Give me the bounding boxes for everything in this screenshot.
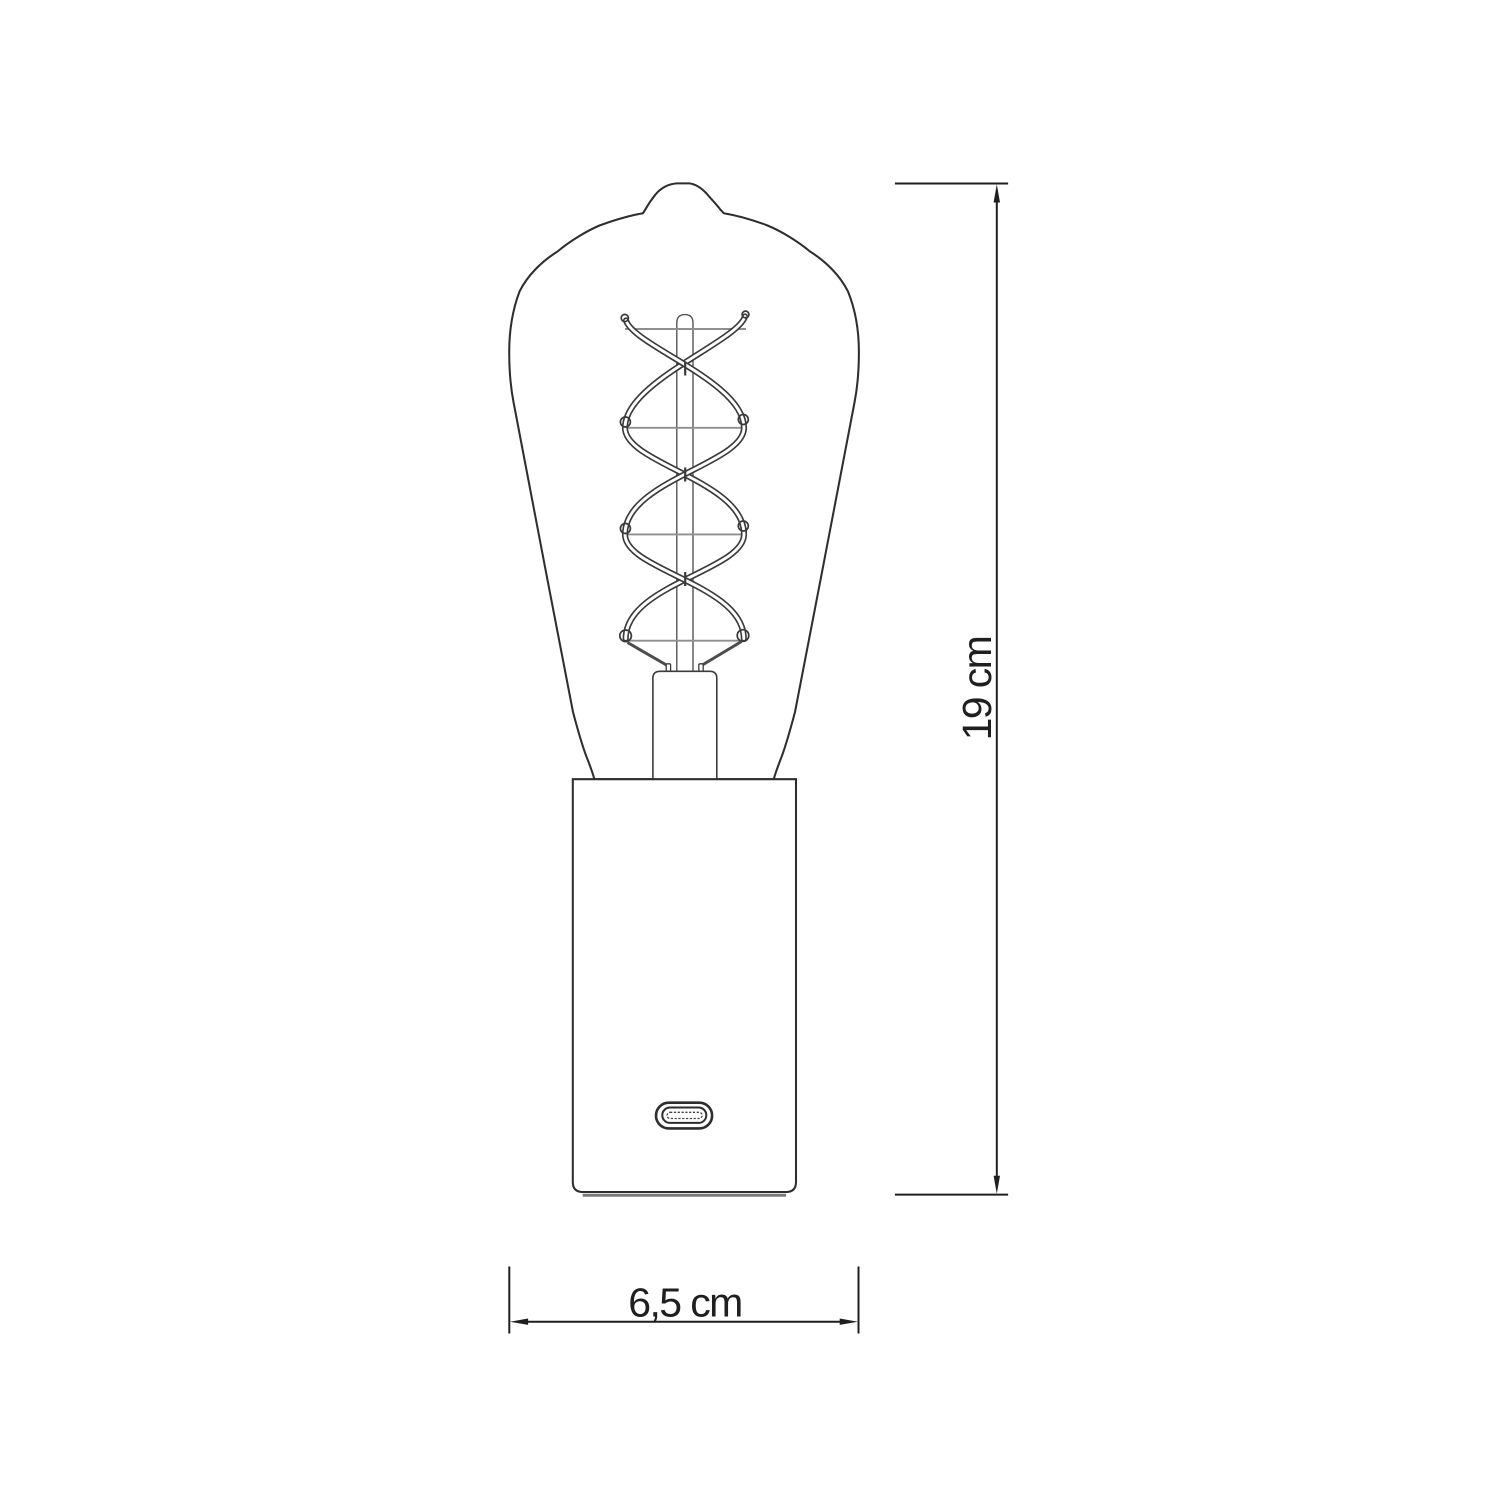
svg-text:19 cm: 19 cm: [954, 637, 1000, 741]
svg-text:6,5 cm: 6,5 cm: [628, 1280, 741, 1326]
